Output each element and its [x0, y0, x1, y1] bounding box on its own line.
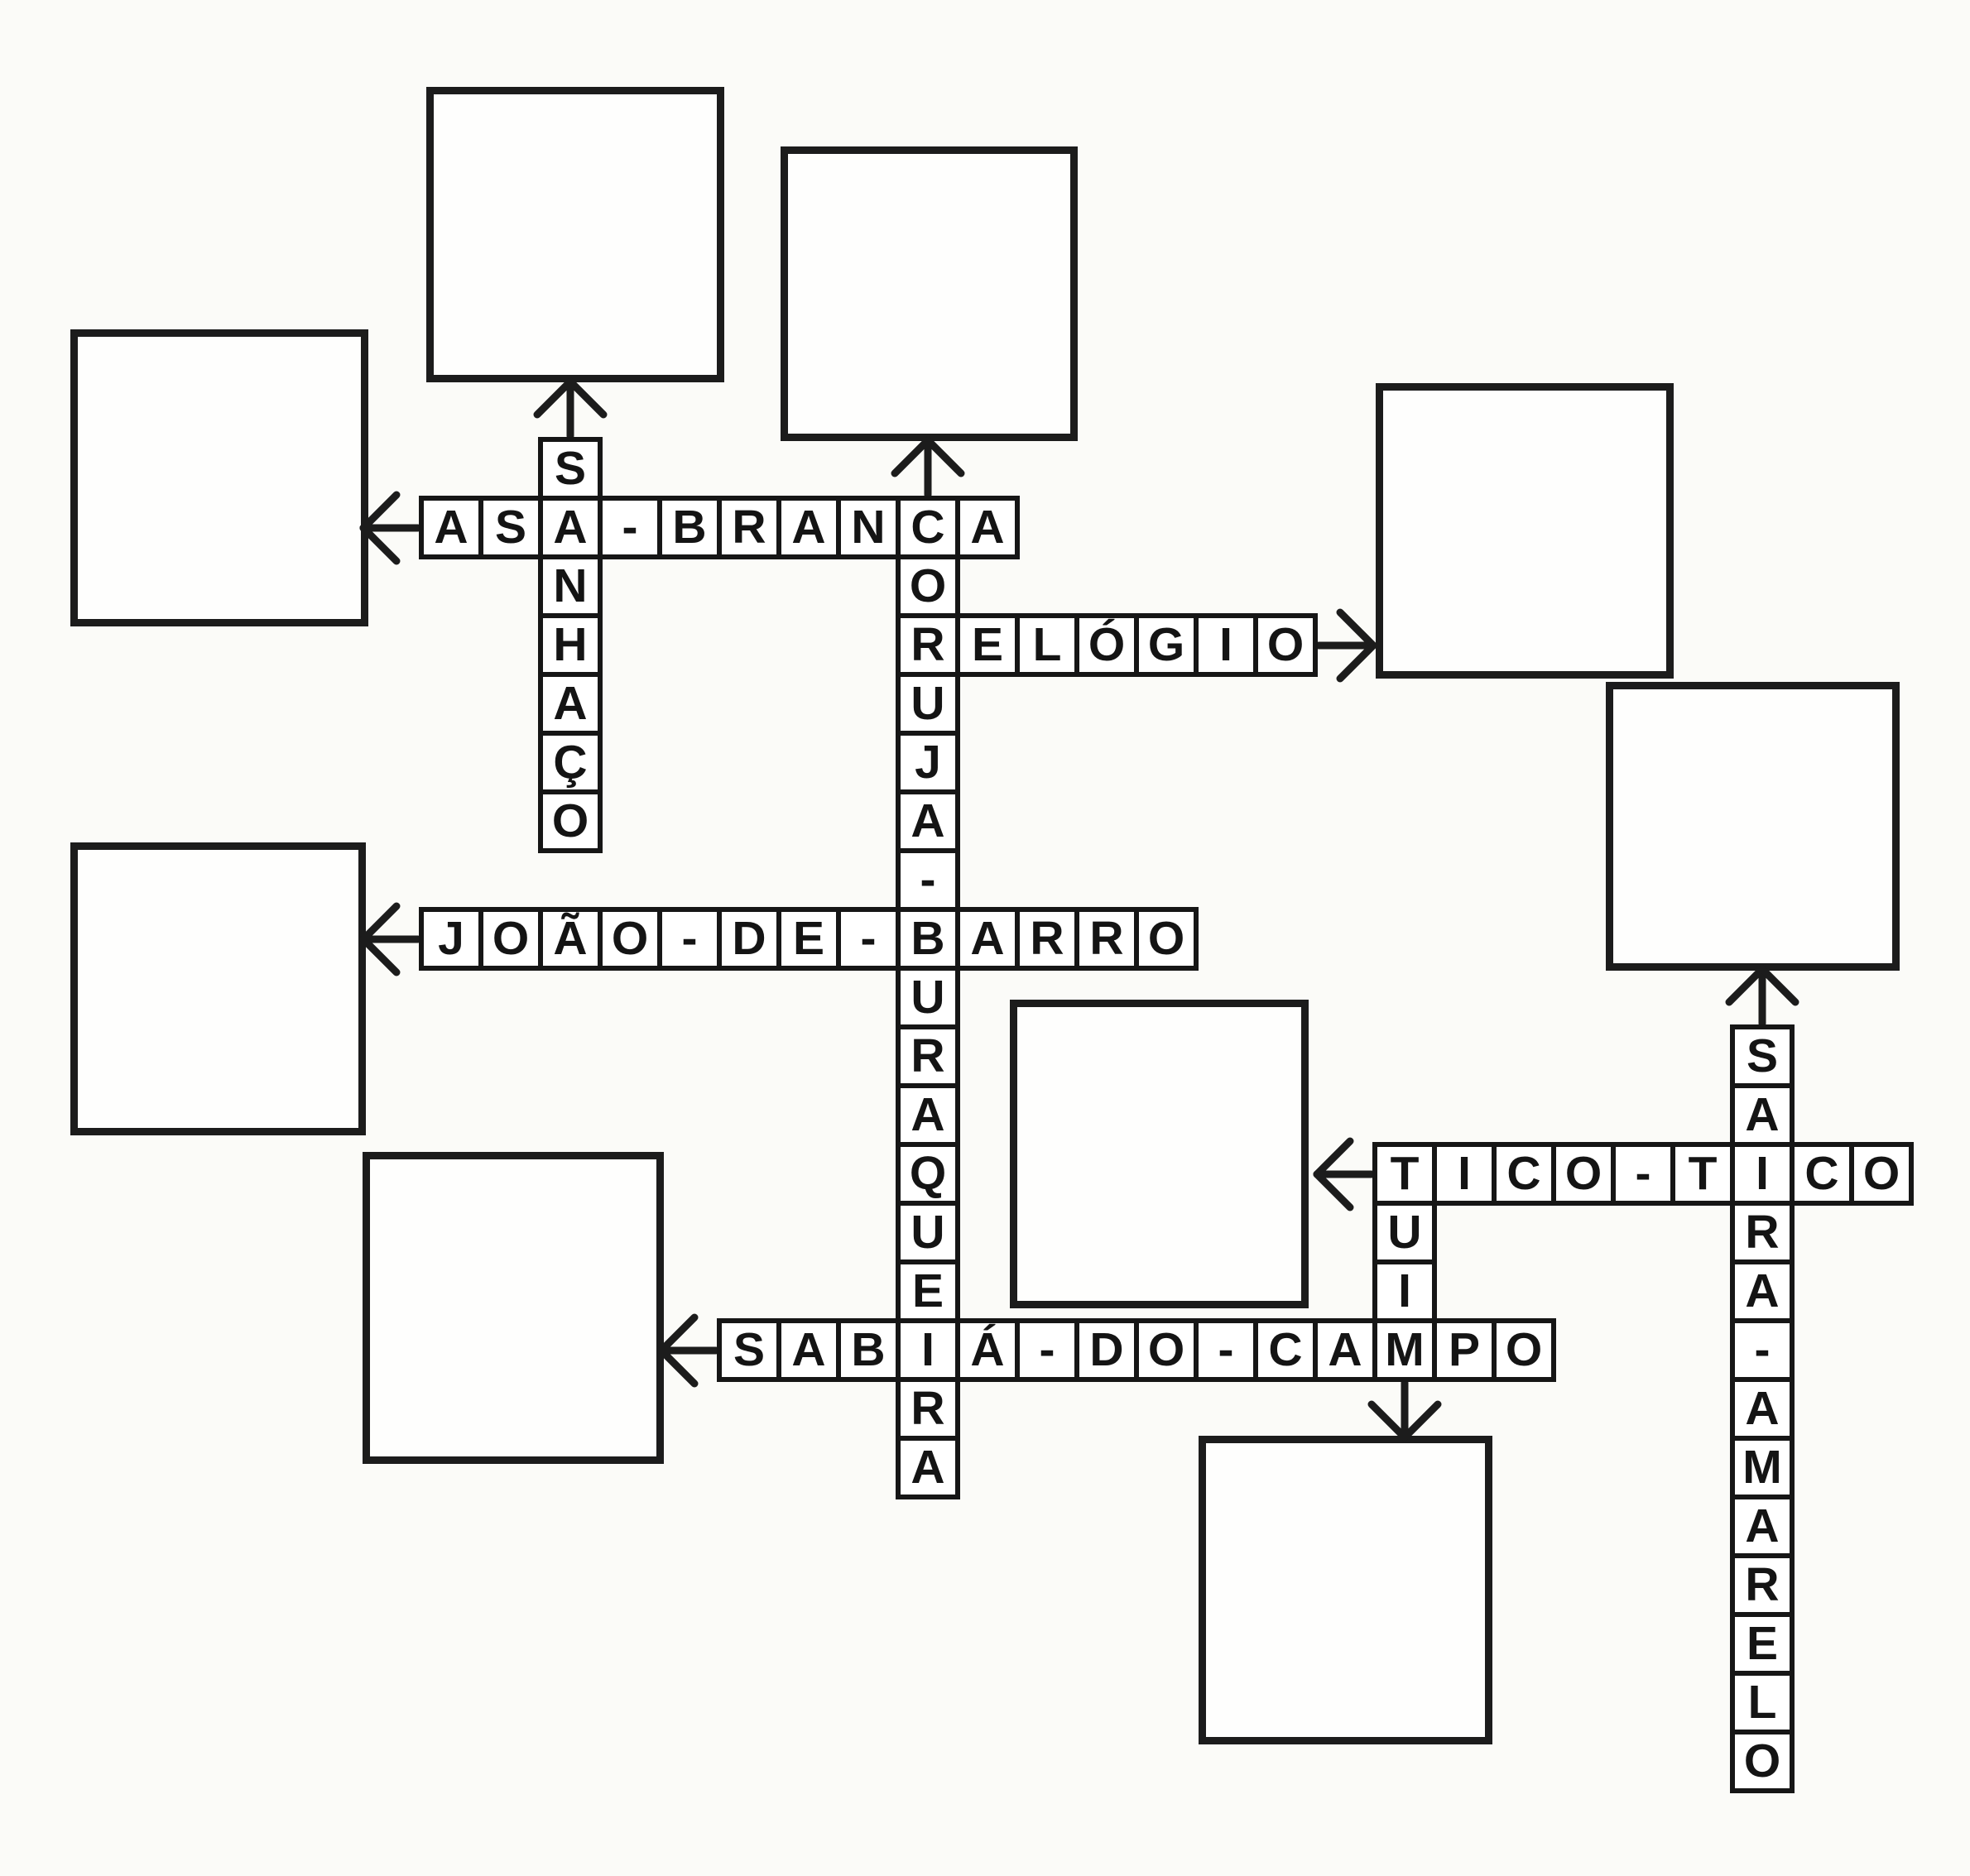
cell-tico-tico-8: C [1790, 1142, 1854, 1206]
cell-saira-amarelo-13: O [1730, 1730, 1795, 1793]
cell-saira-amarelo-5: A [1730, 1259, 1795, 1323]
cell-tuim-3: I [1372, 1259, 1437, 1323]
cell-joao-de-barro-12: R [1074, 907, 1139, 971]
cell-coruja-buraqueira-17: A [896, 1436, 960, 1499]
cell-sabia-do-campo-4: I [896, 1318, 960, 1382]
cell-relogio-6: I [1194, 613, 1258, 677]
cell-tico-tico-9: O [1849, 1142, 1914, 1206]
cell-sabia-do-campo-9: - [1194, 1318, 1258, 1382]
cell-coruja-buraqueira-12: Q [896, 1142, 960, 1206]
cell-coruja-buraqueira-11: A [896, 1083, 960, 1147]
cell-joao-de-barro-3: Ã [538, 907, 603, 971]
cell-coruja-buraqueira-2: O [896, 554, 960, 618]
cell-saira-amarelo-10: R [1730, 1553, 1795, 1617]
cell-sanhaco-3: N [538, 554, 603, 618]
cell-coruja-buraqueira-9: U [896, 966, 960, 1029]
cell-sabia-do-campo-7: D [1074, 1318, 1139, 1382]
arrow-left-tico-tico [1317, 1141, 1372, 1207]
cell-saira-amarelo-3: I [1730, 1142, 1795, 1206]
arrow-up-saira-amarelo [1729, 969, 1795, 1024]
cell-asa-branca-1: A [419, 496, 483, 559]
cell-sabia-do-campo-14: O [1492, 1318, 1556, 1382]
cell-saira-amarelo-11: E [1730, 1612, 1795, 1676]
cell-sabia-do-campo-3: B [836, 1318, 901, 1382]
cell-saira-amarelo-4: R [1730, 1201, 1795, 1264]
cell-sabia-do-campo-6: - [1015, 1318, 1079, 1382]
cell-asa-branca-10: A [955, 496, 1020, 559]
cell-saira-amarelo-1: S [1730, 1024, 1795, 1088]
cell-sanhaco-5: A [538, 672, 603, 736]
cell-sabia-do-campo-5: Á [955, 1318, 1020, 1382]
cell-saira-amarelo-7: A [1730, 1377, 1795, 1441]
cell-relogio-7: O [1253, 613, 1318, 677]
cell-sabia-do-campo-11: A [1313, 1318, 1377, 1382]
cell-joao-de-barro-6: D [717, 907, 781, 971]
cell-asa-branca-8: N [836, 496, 901, 559]
cell-joao-de-barro-8: - [836, 907, 901, 971]
cell-coruja-buraqueira-4: U [896, 672, 960, 736]
cell-saira-amarelo-12: L [1730, 1671, 1795, 1734]
cell-joao-de-barro-13: O [1134, 907, 1199, 971]
cell-coruja-buraqueira-13: U [896, 1201, 960, 1264]
cell-sanhaco-4: H [538, 613, 603, 677]
cell-joao-de-barro-9: B [896, 907, 960, 971]
arrow-down-tuim [1372, 1383, 1438, 1437]
cell-saira-amarelo-8: M [1730, 1436, 1795, 1499]
cell-sanhaco-7: O [538, 789, 603, 853]
cell-tuim-2: U [1372, 1201, 1437, 1264]
cell-asa-branca-6: R [717, 496, 781, 559]
cell-sanhaco-6: Ç [538, 731, 603, 794]
cell-joao-de-barro-10: A [955, 907, 1020, 971]
cell-tico-tico-6: T [1670, 1142, 1735, 1206]
cell-sanhaco-1: S [538, 437, 603, 501]
cell-sanhaco-2: A [538, 496, 603, 559]
cell-sabia-do-campo-2: A [776, 1318, 841, 1382]
cell-joao-de-barro-1: J [419, 907, 483, 971]
cell-coruja-buraqueira-1: C [896, 496, 960, 559]
arrow-right-relogio [1319, 612, 1373, 679]
cell-sabia-do-campo-8: O [1134, 1318, 1199, 1382]
arrow-up-coruja-buraqueira [895, 440, 961, 495]
cell-joao-de-barro-11: R [1015, 907, 1079, 971]
cell-joao-de-barro-4: O [598, 907, 662, 971]
cell-saira-amarelo-2: A [1730, 1083, 1795, 1147]
cell-asa-branca-4: - [598, 496, 662, 559]
cell-coruja-buraqueira-6: A [896, 789, 960, 853]
arrow-up-sanhaco [537, 381, 603, 436]
cell-tuim-4: M [1372, 1318, 1437, 1382]
cell-joao-de-barro-5: - [657, 907, 722, 971]
cell-saira-amarelo-9: A [1730, 1495, 1795, 1558]
cell-tico-tico-3: C [1492, 1142, 1556, 1206]
cell-tico-tico-5: - [1611, 1142, 1675, 1206]
cell-coruja-buraqueira-16: R [896, 1377, 960, 1441]
cell-joao-de-barro-2: O [478, 907, 543, 971]
cell-saira-amarelo-6: - [1730, 1318, 1795, 1382]
cell-sabia-do-campo-10: C [1253, 1318, 1318, 1382]
cell-relogio-4: Ó [1074, 613, 1139, 677]
cell-relogio-3: L [1015, 613, 1079, 677]
cell-joao-de-barro-7: E [776, 907, 841, 971]
cell-coruja-buraqueira-7: - [896, 848, 960, 912]
cell-tuim-1: T [1372, 1142, 1437, 1206]
cell-tico-tico-2: I [1432, 1142, 1497, 1206]
cell-asa-branca-5: B [657, 496, 722, 559]
cell-relogio-2: E [955, 613, 1020, 677]
cell-sabia-do-campo-13: P [1432, 1318, 1497, 1382]
arrow-left-joao-de-barro [363, 906, 418, 972]
arrow-left-sabia-do-campo [661, 1317, 716, 1384]
cell-asa-branca-7: A [776, 496, 841, 559]
cell-relogio-1: R [896, 613, 960, 677]
cell-tico-tico-4: O [1551, 1142, 1616, 1206]
cell-coruja-buraqueira-5: J [896, 731, 960, 794]
cell-coruja-buraqueira-10: R [896, 1024, 960, 1088]
crossword-worksheet: ASA-BRANCASANHAÇOCORUJA-BURAQUEIRARELÓGI… [0, 0, 1970, 1876]
arrow-left-asa-branca [363, 495, 418, 561]
cell-sabia-do-campo-1: S [717, 1318, 781, 1382]
cell-relogio-5: G [1134, 613, 1199, 677]
cell-asa-branca-2: S [478, 496, 543, 559]
cell-coruja-buraqueira-14: E [896, 1259, 960, 1323]
